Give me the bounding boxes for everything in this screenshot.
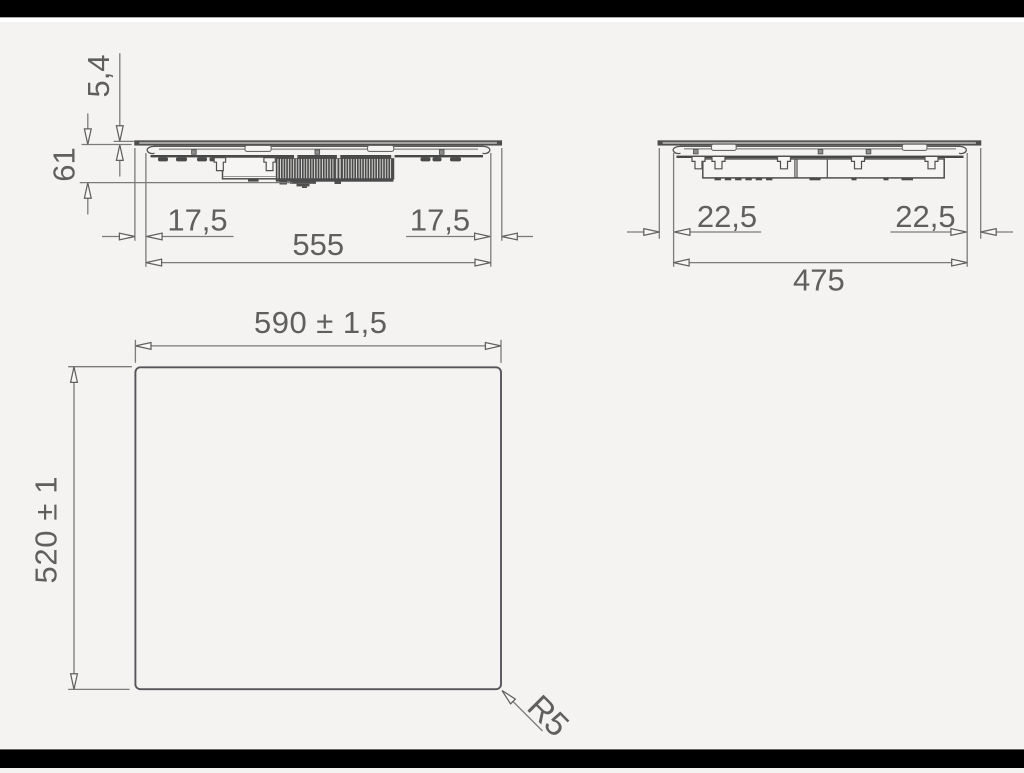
svg-text:61: 61	[46, 147, 81, 181]
svg-text:5,4: 5,4	[81, 54, 116, 97]
svg-text:22,5: 22,5	[697, 199, 757, 234]
svg-text:555: 555	[292, 227, 344, 262]
svg-text:590 ± 1,5: 590 ± 1,5	[254, 305, 387, 340]
svg-text:17,5: 17,5	[167, 203, 227, 238]
svg-text:475: 475	[793, 262, 845, 297]
svg-text:22,5: 22,5	[895, 199, 955, 234]
svg-text:520 ± 1: 520 ± 1	[28, 477, 63, 584]
svg-text:17,5: 17,5	[410, 203, 470, 238]
